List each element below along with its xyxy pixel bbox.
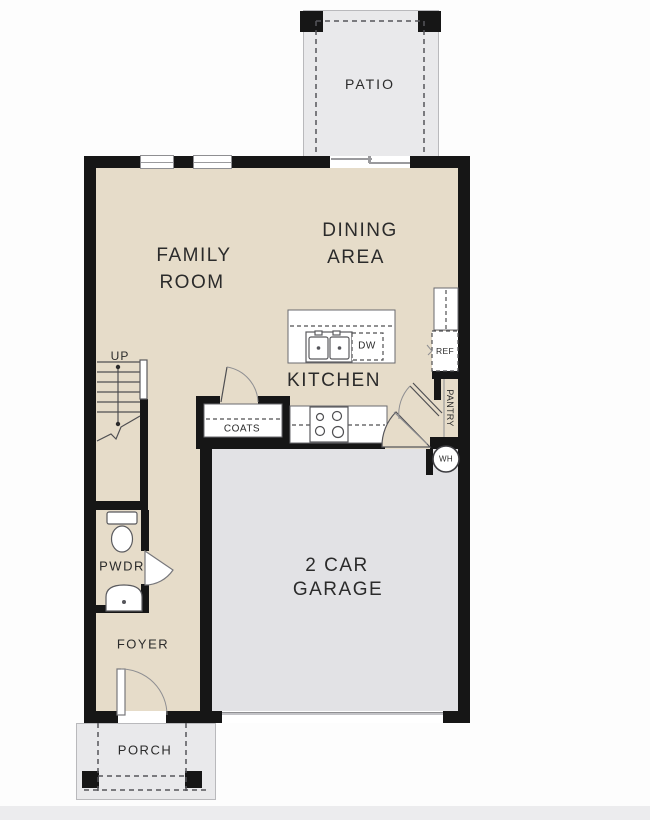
dishwasher-label: DW — [358, 341, 376, 352]
powder-room-door — [145, 551, 173, 585]
floor-plan: PATIO FAMILY ROOM DINING AREA KITCHEN 2 … — [0, 0, 650, 820]
room-label-kitchen: KITCHEN — [287, 370, 381, 392]
pantry-door — [399, 383, 442, 419]
room-label-patio: PATIO — [345, 76, 395, 92]
upper-cabinet — [434, 288, 458, 330]
room-label-family-line2: ROOM — [159, 272, 224, 294]
coats-label: COATS — [224, 424, 260, 435]
room-label-dining-line1: DINING — [322, 220, 398, 242]
room-label-dining-line2: AREA — [327, 247, 385, 269]
garage-entry-door — [382, 412, 430, 447]
staircase — [97, 360, 147, 441]
front-door — [117, 669, 167, 715]
room-label-porch: PORCH — [118, 743, 172, 758]
kitchen-island — [288, 310, 395, 363]
stove — [310, 407, 348, 442]
toilet — [107, 512, 137, 552]
stair-railing — [140, 360, 147, 399]
double-sink — [306, 331, 352, 362]
room-label-family-line1: FAMILY — [156, 245, 231, 267]
stairs-up-label: UP — [111, 349, 130, 363]
pantry-label: PANTRY — [445, 389, 455, 426]
porch-outline — [84, 723, 206, 792]
range-counter — [290, 406, 387, 443]
room-label-foyer: FOYER — [117, 637, 169, 652]
coats-door — [221, 367, 258, 402]
water-heater-label: WH — [439, 455, 453, 464]
room-label-garage-line2: GARAGE — [293, 579, 383, 601]
powder-sink — [106, 585, 142, 611]
plan-linework — [0, 0, 650, 820]
refrigerator-label: REF — [436, 346, 454, 356]
bottom-band — [0, 806, 650, 820]
room-label-garage-line1: 2 CAR — [305, 555, 368, 577]
room-label-pwdr: PWDR — [99, 559, 145, 574]
